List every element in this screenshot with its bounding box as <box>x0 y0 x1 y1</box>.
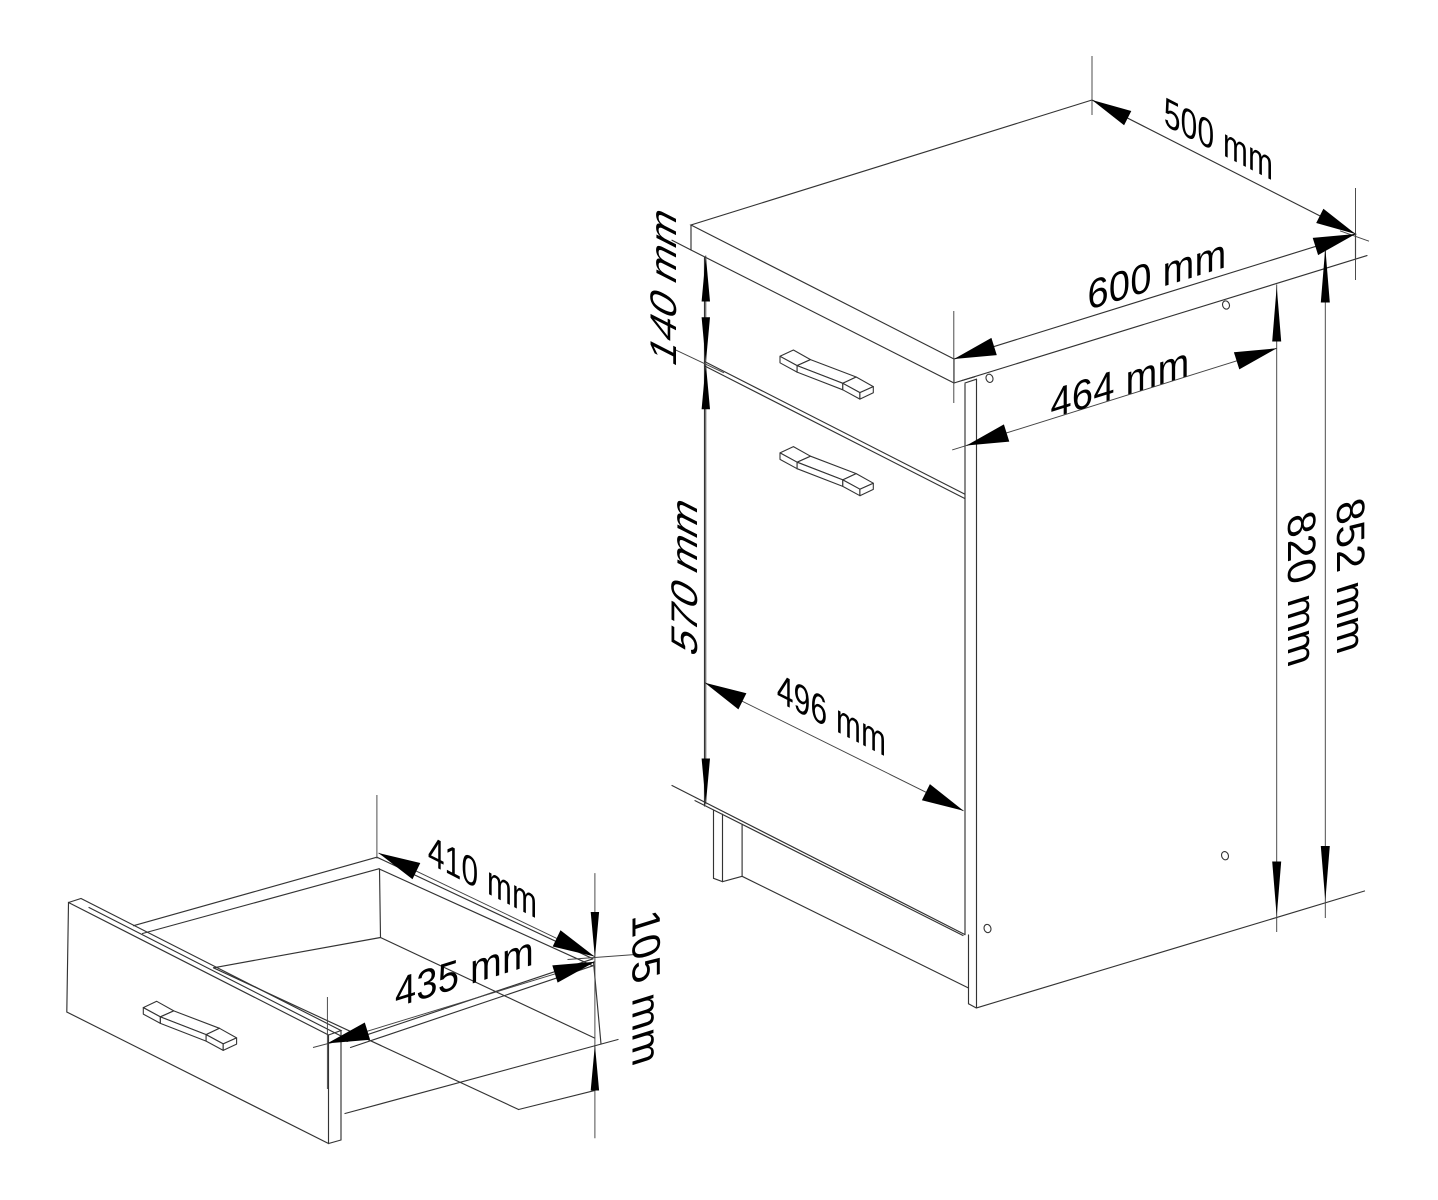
svg-text:496 mm: 496 mm <box>777 664 886 766</box>
svg-text:820 mm: 820 mm <box>1279 505 1324 671</box>
svg-text:500 mm: 500 mm <box>1164 88 1273 190</box>
svg-text:852 mm: 852 mm <box>1328 492 1373 658</box>
svg-text:464 mm: 464 mm <box>1050 338 1189 428</box>
svg-text:410 mm: 410 mm <box>428 826 537 928</box>
svg-text:435 mm: 435 mm <box>395 927 534 1017</box>
svg-text:140 mm: 140 mm <box>642 198 684 372</box>
svg-text:105 mm: 105 mm <box>624 904 669 1070</box>
svg-text:570 mm: 570 mm <box>663 488 705 662</box>
